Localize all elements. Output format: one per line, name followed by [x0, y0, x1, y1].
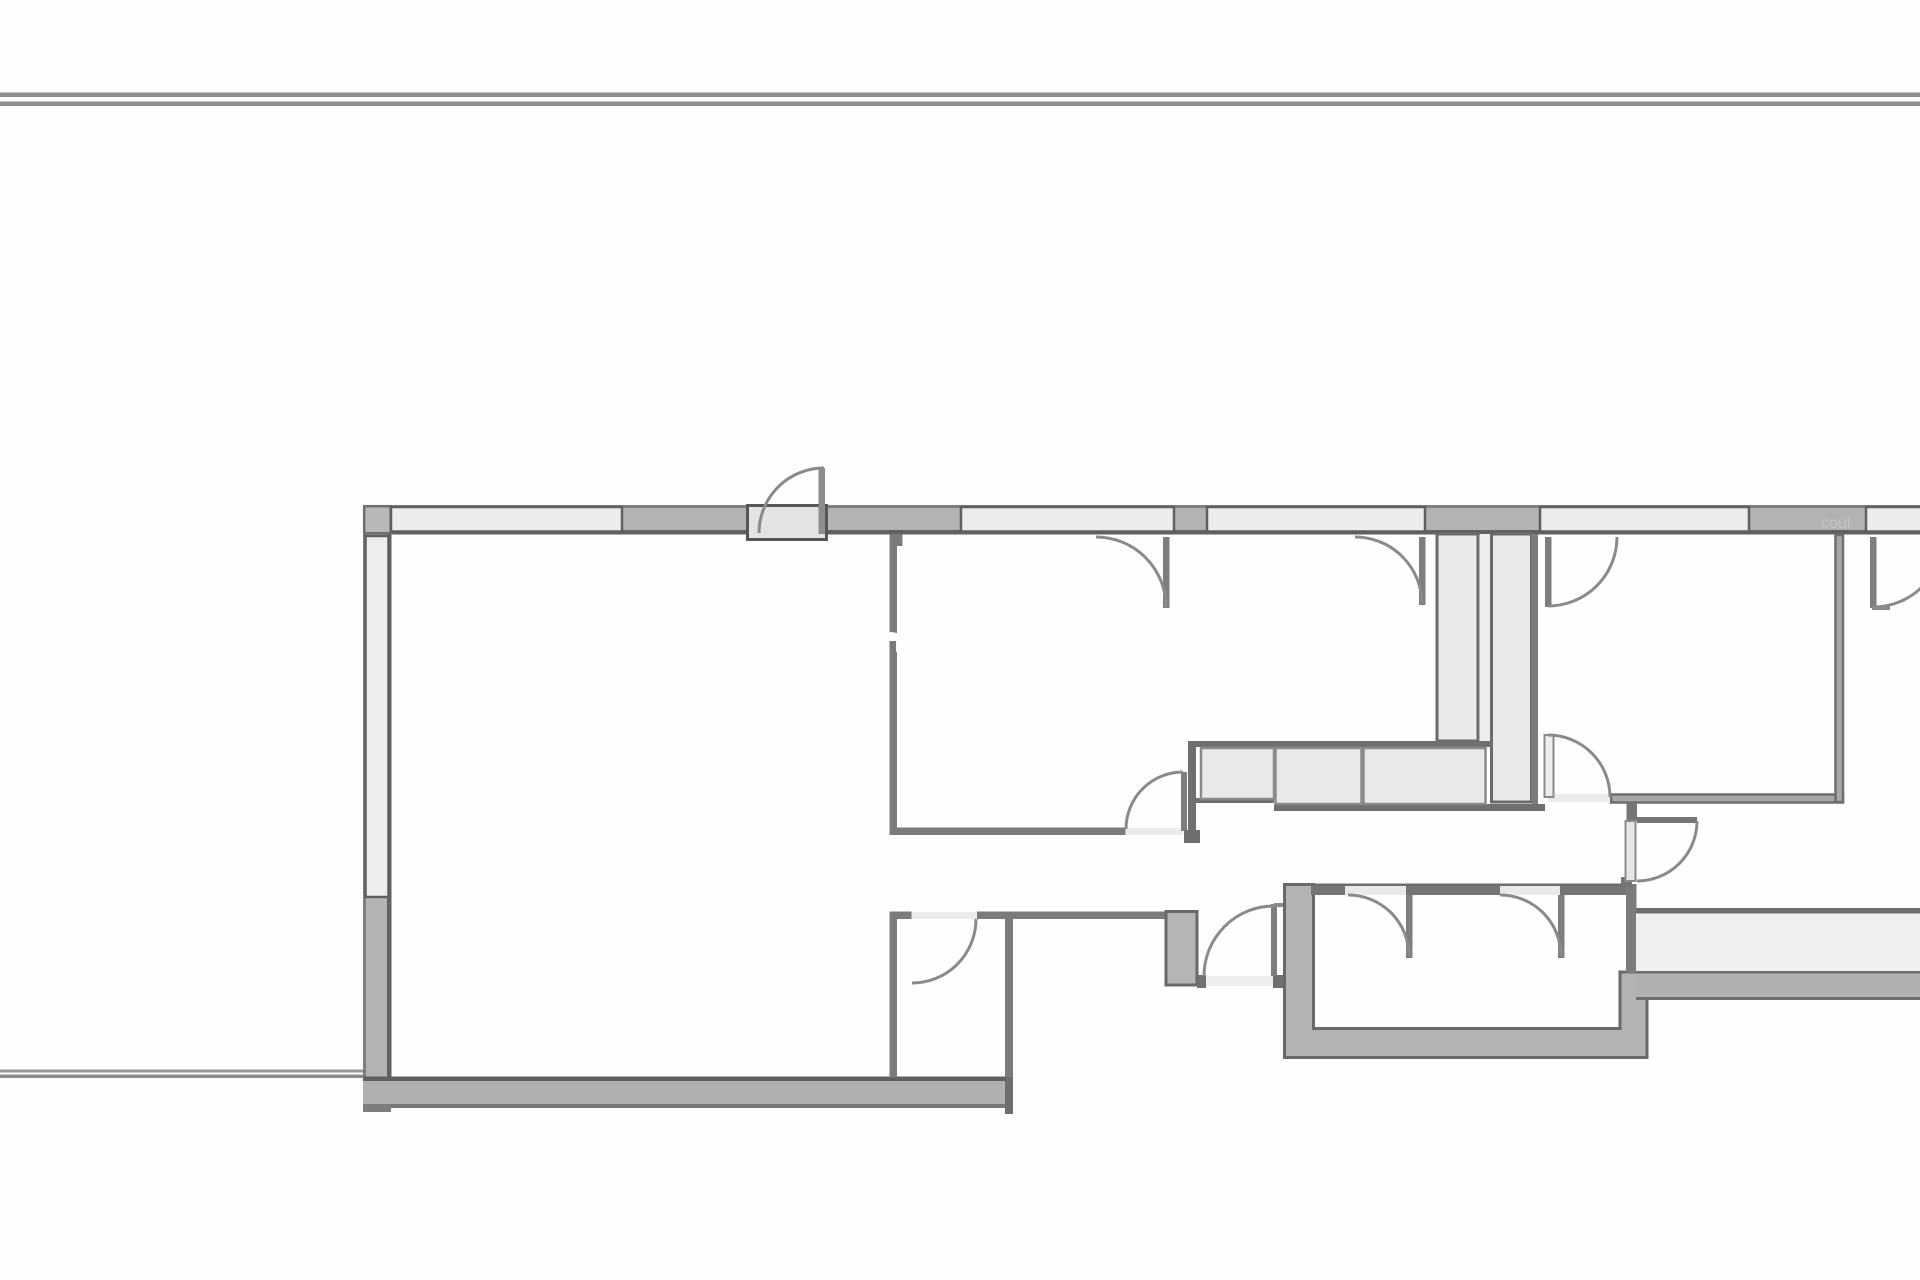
svg-text:coul: coul — [1821, 515, 1850, 532]
